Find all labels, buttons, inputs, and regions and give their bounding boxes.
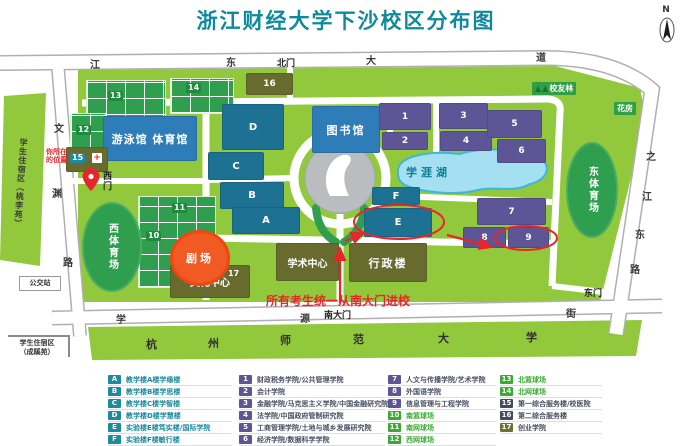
you-are-here-label: 你所在 的位置: [46, 148, 67, 164]
legend-row: 15第一综合服务楼/校医院: [500, 398, 602, 410]
north-gate-label: 北门: [277, 56, 295, 69]
legend-row: E实验楼E楼笃实楼/国际学院: [108, 422, 232, 434]
road-west-char: 文: [54, 120, 64, 135]
west-gate-label: 西门: [103, 172, 114, 192]
legend-row: A教学楼A楼学缘楼: [108, 374, 232, 386]
dorm-south-label: 学生住宿区 （成蹊苑）: [8, 335, 70, 357]
road-east-char: 路: [630, 261, 640, 276]
road-north-char: 江: [90, 56, 100, 71]
building-7: 7: [477, 198, 546, 225]
neighbor-univ-char: 学: [526, 329, 537, 345]
mark-15: 15: [70, 153, 85, 163]
admin-building: 行政楼: [349, 243, 427, 282]
mark-12: 12: [76, 125, 91, 135]
neighbor-univ-char: 大: [438, 330, 449, 346]
legend-column-2: 1财政税务学院/公共管理学院 2会计学院 3金融学院/马克思主义学院/中国金融研…: [239, 374, 385, 446]
greenhouse-badge: 花房: [614, 102, 636, 115]
legend-row: F实验楼F楼敏行楼: [108, 434, 232, 446]
building-8: 8: [463, 227, 506, 248]
street-south-char: 街: [566, 305, 576, 320]
west-stadium: 西体育场: [82, 202, 142, 292]
building-5: 5: [487, 110, 542, 138]
legend-row: 11南网球场: [388, 422, 496, 434]
road-east-char: 江: [642, 188, 652, 203]
road-west: [58, 68, 80, 336]
legend-row: 6经济学院/数据科学学院: [239, 434, 385, 446]
mark-14: 14: [186, 83, 201, 93]
legend-row: 7人文与传播学院/艺术学院: [388, 374, 496, 386]
legend-row: D教学楼D楼学慧楼: [108, 410, 232, 422]
building-E: E: [364, 208, 432, 237]
legend-column-4: 13北篮球场 14北网球场 15第一综合服务楼/校医院 16第二综合服务楼 17…: [500, 374, 602, 434]
building-6: 6: [497, 139, 546, 163]
building-B: B: [220, 182, 284, 209]
academic-center-building: 学术中心: [276, 243, 339, 281]
compass-icon: [658, 16, 676, 44]
building-4: 4: [440, 131, 492, 151]
building-9: 9: [508, 227, 549, 248]
red-cross-icon: +: [92, 153, 102, 163]
road-east-char: 之: [646, 148, 656, 163]
street-south-char: 源: [300, 310, 310, 325]
south-gate-label: 南大门: [324, 308, 351, 321]
neighbor-univ-char: 杭: [146, 336, 157, 352]
neighbor-univ-char: 范: [353, 331, 364, 347]
building-C: C: [208, 152, 264, 180]
road-west-char: 渊: [52, 185, 62, 200]
legend-row: 5工商管理学院/土地与城乡发展研究院: [239, 422, 385, 434]
east-gate-label: 东门: [584, 286, 602, 299]
tree-icon: ▲: [535, 82, 541, 95]
road-north-char: 东: [226, 54, 236, 69]
street-south-char: 学: [116, 311, 126, 326]
road-north-char: 大: [366, 52, 376, 67]
page-title: 浙江财经大学下沙校区分布图: [0, 5, 692, 35]
building-D: D: [222, 104, 284, 150]
neighbor-strip-south: [88, 320, 642, 360]
neighbor-univ-char: 州: [208, 335, 219, 351]
east-stadium: 东体育场: [566, 142, 618, 238]
exam-notice-label: 所有考生统一从南大门进校: [266, 292, 410, 309]
legend-row: C教学楼C楼学智楼: [108, 398, 232, 410]
road-west-char: 路: [63, 254, 73, 269]
legend-row: 2会计学院: [239, 386, 385, 398]
road-east-char: 东: [635, 226, 645, 241]
pool-gym-building: 游泳馆 体育馆: [103, 116, 197, 161]
legend-row: 12西网球场: [388, 434, 496, 446]
library-building: 图书馆: [312, 106, 380, 153]
mark-10: 10: [146, 231, 161, 241]
neighbor-univ-char: 师: [280, 332, 291, 348]
building-A: A: [232, 207, 300, 234]
legend-row: 9信息管理与工程学院: [388, 398, 496, 410]
legend-row: 16第二综合服务楼: [500, 410, 602, 422]
legend-row: 14北网球场: [500, 386, 602, 398]
lake-label: 学涯湖: [406, 164, 451, 180]
compass-label: N: [654, 5, 678, 15]
legend-row: 17创业学院: [500, 422, 602, 434]
legend-row: 8外国语学院: [388, 386, 496, 398]
legend-row: B教学楼B楼学思楼: [108, 386, 232, 398]
legend-column-3: 7人文与传播学院/艺术学院 8外国语学院 9信息管理与工程学院 10南篮球场 1…: [388, 374, 496, 446]
road-north-char: 道: [536, 49, 546, 64]
legend-row: 13北篮球场: [500, 374, 602, 386]
legend-row: 10南篮球场: [388, 410, 496, 422]
building-16: 16: [246, 73, 293, 95]
building-F: F: [372, 187, 420, 205]
building-3: 3: [439, 103, 488, 129]
legend-row: 3金融学院/马克思主义学院/中国金融研究院: [239, 398, 385, 410]
campus-map-page: 浙江财经大学下沙校区分布图 N 13 14 12 10 11 西体育场 东体育场…: [0, 0, 692, 446]
mark-13: 13: [108, 91, 123, 101]
building-1: 1: [379, 103, 431, 130]
bus-stop-box: 公交站: [19, 276, 61, 291]
legend-row: 1财政税务学院/公共管理学院: [239, 374, 385, 386]
alumni-forest-badge: ▲▲ 校友林: [532, 82, 576, 95]
tree-icon: ▲: [542, 82, 548, 95]
legend-row: 4法学院/中国政府管制研究院: [239, 410, 385, 422]
theater-building: 剧场: [170, 230, 230, 286]
mark-11: 11: [172, 203, 187, 213]
mark-17: 17: [228, 269, 239, 278]
building-2: 2: [382, 132, 428, 150]
legend-column-1: A教学楼A楼学缘楼 B教学楼B楼学思楼 C教学楼C楼学智楼 D教学楼D楼学慧楼 …: [108, 374, 232, 446]
